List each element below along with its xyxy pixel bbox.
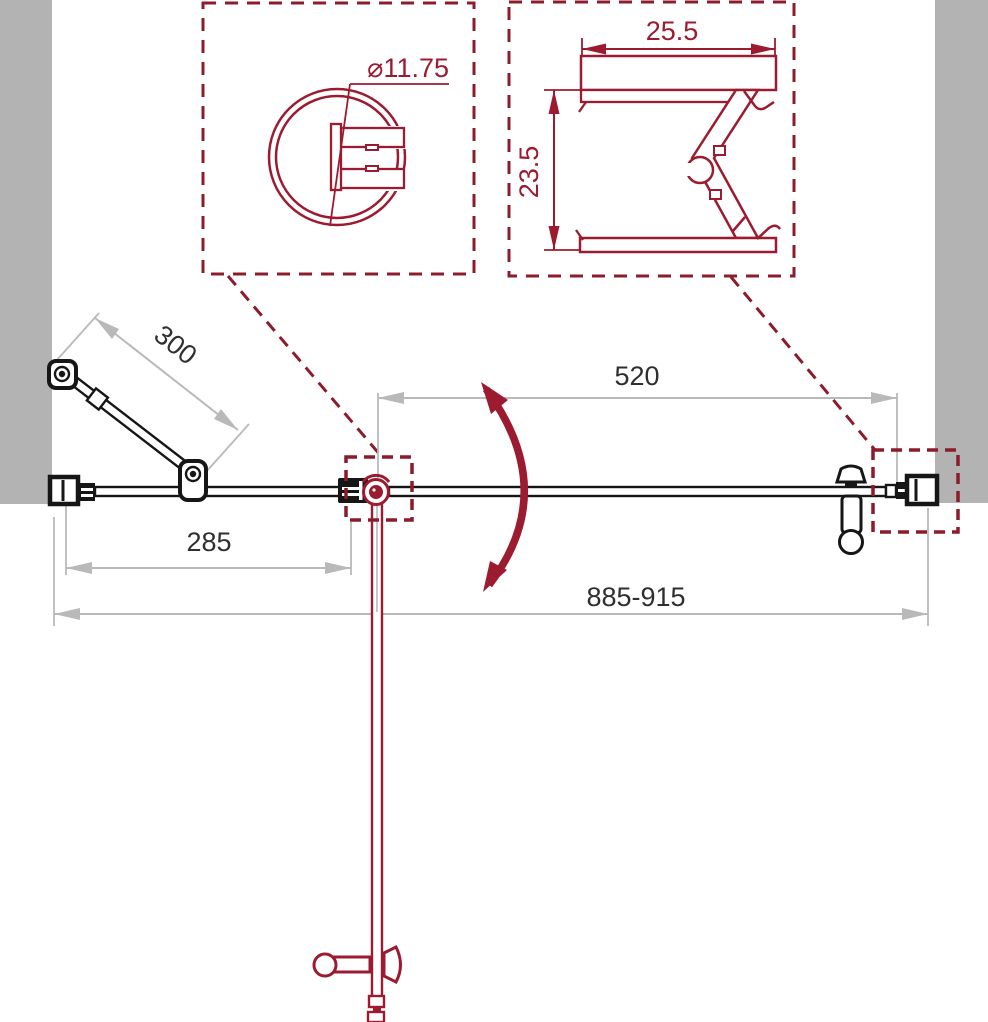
left-wall [0, 0, 52, 504]
door-bottom-guide [369, 996, 384, 1007]
dim-label-wall-profile-depth: 23.5 [514, 146, 544, 199]
dim-label-door-width: 520 [614, 361, 659, 391]
leader-line-knob-profile [228, 276, 381, 456]
right-wall-profile [886, 476, 937, 504]
dim-label-fixed-panel: 285 [186, 527, 231, 557]
door-handle-open [314, 947, 401, 982]
dim-label-overall-width: 885-915 [586, 582, 685, 612]
drawing-svg: ⌀11.75 25.5 23.5 [0, 0, 988, 1022]
technical-drawing-canvas: ⌀11.75 25.5 23.5 [0, 0, 988, 1022]
dim-label-support-bar: 300 [149, 319, 203, 370]
leader-line-wall-profile [731, 277, 875, 450]
dim-label-knob-diameter: ⌀11.75 [367, 53, 449, 83]
door-panel-open [368, 503, 384, 1022]
right-wall [935, 0, 988, 503]
fixed-glass-panel [95, 487, 368, 496]
dim-label-wall-profile-width: 25.5 [646, 16, 699, 46]
wall-profile-drawing: 25.5 23.5 [514, 16, 780, 252]
door-panel-closed [389, 487, 886, 496]
left-wall-profile [50, 477, 95, 504]
knob-profile-drawing: ⌀11.75 [269, 53, 449, 226]
door-handle-closed [837, 466, 865, 554]
